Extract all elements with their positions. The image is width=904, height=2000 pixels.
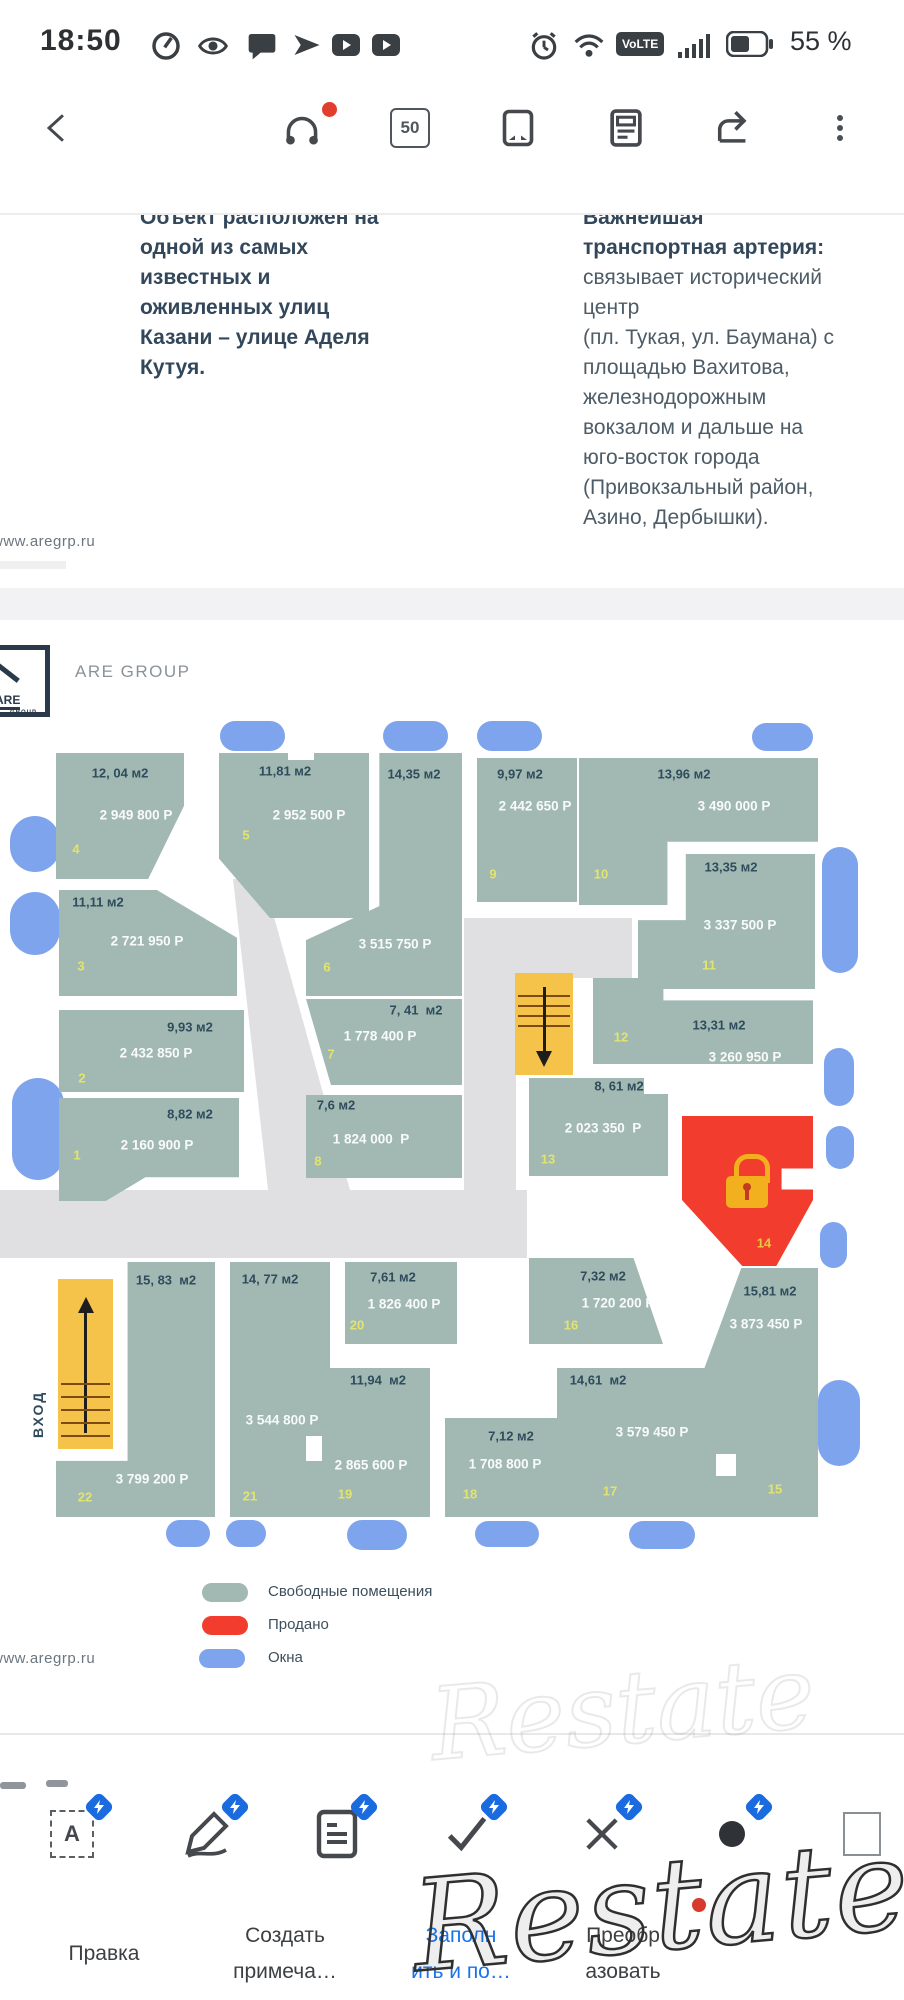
door-gap [306, 1436, 322, 1461]
text-edit-tool-button[interactable]: A [44, 1804, 100, 1864]
left-text-column: Объект расположен на одной из самых изве… [140, 215, 379, 383]
page-count-badge: 50 [390, 108, 430, 148]
pdf-page-text: Объект расположен на одной из самых изве… [0, 215, 904, 588]
section-divider [0, 588, 904, 620]
window-pill [820, 1222, 847, 1268]
video-icon [332, 34, 360, 56]
window-pill [166, 1520, 210, 1547]
ai-badge-icon [743, 1791, 774, 1822]
wifi-icon [572, 30, 606, 62]
window-pill [10, 892, 60, 955]
unit-21: 14, 77 м2 3 544 800 Р 21 [230, 1262, 330, 1517]
speedometer-icon [150, 30, 182, 62]
legend-sold-label: Продано [268, 1616, 329, 1633]
window-pill [383, 721, 448, 751]
unit-7: 7, 41 м2 1 778 400 Р 7 [306, 999, 462, 1085]
window-pill [220, 721, 285, 751]
page-count-button[interactable]: 50 [388, 106, 432, 150]
window-pill [10, 816, 60, 872]
status-bar: 18:50 VoLTE [0, 0, 904, 88]
notification-dot [692, 1898, 706, 1912]
share-button[interactable] [712, 106, 756, 150]
unit-16: 7,32 м2 1 720 200 Р 16 [529, 1258, 663, 1344]
legend-free-label: Свободные помещения [268, 1583, 432, 1600]
unit-12: 13,31 м2 3 260 950 Р 12 [593, 978, 813, 1064]
reader-view-button[interactable] [604, 106, 648, 150]
window-pill [477, 721, 542, 751]
right-text-column: Важнейшая транспортная артерия: связывае… [583, 215, 834, 533]
alarm-icon [528, 30, 560, 62]
faint-mark [0, 561, 66, 569]
unit-17: 14,61 м2 3 579 450 Р 17 [557, 1368, 734, 1517]
unit-4: 12, 04 м2 2 949 800 Р 4 [56, 753, 184, 879]
window-pill [822, 847, 858, 973]
unit-20: 7,61 м2 1 826 400 Р 20 [345, 1262, 457, 1344]
page-edge-mark [46, 1780, 68, 1787]
staircase-up [58, 1279, 113, 1449]
corridor [464, 918, 632, 978]
window-pill [12, 1078, 64, 1180]
window-pill [752, 723, 813, 751]
page-edge-mark [0, 1782, 26, 1789]
site-url: www.aregrp.ru [0, 1650, 95, 1667]
floor-plan-page: ARE GROUP ARE GROUP [0, 620, 904, 1733]
tab-edit[interactable]: Правка [19, 1918, 189, 1972]
send-icon [292, 30, 322, 60]
battery-percent: 55 % [790, 26, 852, 57]
form-tool-button[interactable] [309, 1804, 365, 1864]
back-button[interactable] [34, 106, 78, 150]
window-pill [826, 1126, 854, 1169]
overflow-menu-button[interactable] [818, 106, 862, 150]
window-pill [347, 1520, 407, 1550]
battery-icon [726, 31, 774, 57]
window-pill [629, 1521, 695, 1549]
legend-free-swatch [202, 1583, 248, 1602]
window-pill [818, 1380, 860, 1466]
door-gap [716, 1454, 736, 1476]
door-gap [288, 748, 314, 760]
door-gap [644, 1076, 670, 1094]
form-icon [314, 1808, 360, 1860]
brand-name: ARE GROUP [75, 662, 191, 682]
unit-2: 9,93 м2 2 432 850 Р 2 [59, 1010, 244, 1092]
are-group-logo: ARE [0, 645, 50, 717]
logo-group-label: GROUP [10, 710, 37, 716]
lock-icon [726, 1176, 768, 1208]
legend-window-label: Окна [268, 1649, 303, 1666]
pdf-toolbar: 50 [0, 88, 904, 213]
unit-19: 11,94 м2 2 865 600 Р 19 [318, 1368, 430, 1517]
notification-dot [322, 102, 337, 117]
audio-read-button[interactable] [280, 106, 324, 150]
unit-8: 7,6 м2 1 824 000 Р 8 [306, 1095, 462, 1178]
unit-9: 9,97 м2 2 442 650 Р 9 [477, 758, 577, 902]
text-edit-icon: A [50, 1810, 94, 1858]
clock-time: 18:50 [40, 24, 122, 58]
unit-14-sold: 14 [682, 1116, 813, 1266]
pen-icon [182, 1808, 234, 1860]
volte-badge: VoLTE [616, 32, 664, 56]
window-pill [824, 1048, 854, 1106]
staircase-down [515, 973, 573, 1075]
legend-sold-swatch [202, 1616, 248, 1635]
window-pill [226, 1520, 266, 1547]
unit-3: 11,11 м2 2 721 950 Р 3 [59, 890, 237, 996]
unit-1: 8,82 м2 2 160 900 Р 1 [59, 1098, 239, 1201]
signature-tool-button[interactable] [180, 1804, 236, 1864]
eye-icon [196, 30, 230, 62]
chat-icon [246, 30, 278, 62]
unit-18: 7,12 м2 1 708 800 Р 18 [445, 1418, 559, 1517]
legend-window-swatch [199, 1649, 245, 1668]
entrance-label: ВХОД [30, 1368, 46, 1438]
screen: 18:50 VoLTE [0, 0, 904, 2000]
signal-icon [678, 32, 712, 58]
fit-page-button[interactable] [496, 106, 540, 150]
site-url: www.aregrp.ru [0, 533, 95, 550]
window-pill [475, 1521, 539, 1547]
video-icon [372, 34, 400, 56]
corridor [464, 978, 516, 1190]
tab-create-note[interactable]: Создать примеча… [200, 1918, 370, 1990]
